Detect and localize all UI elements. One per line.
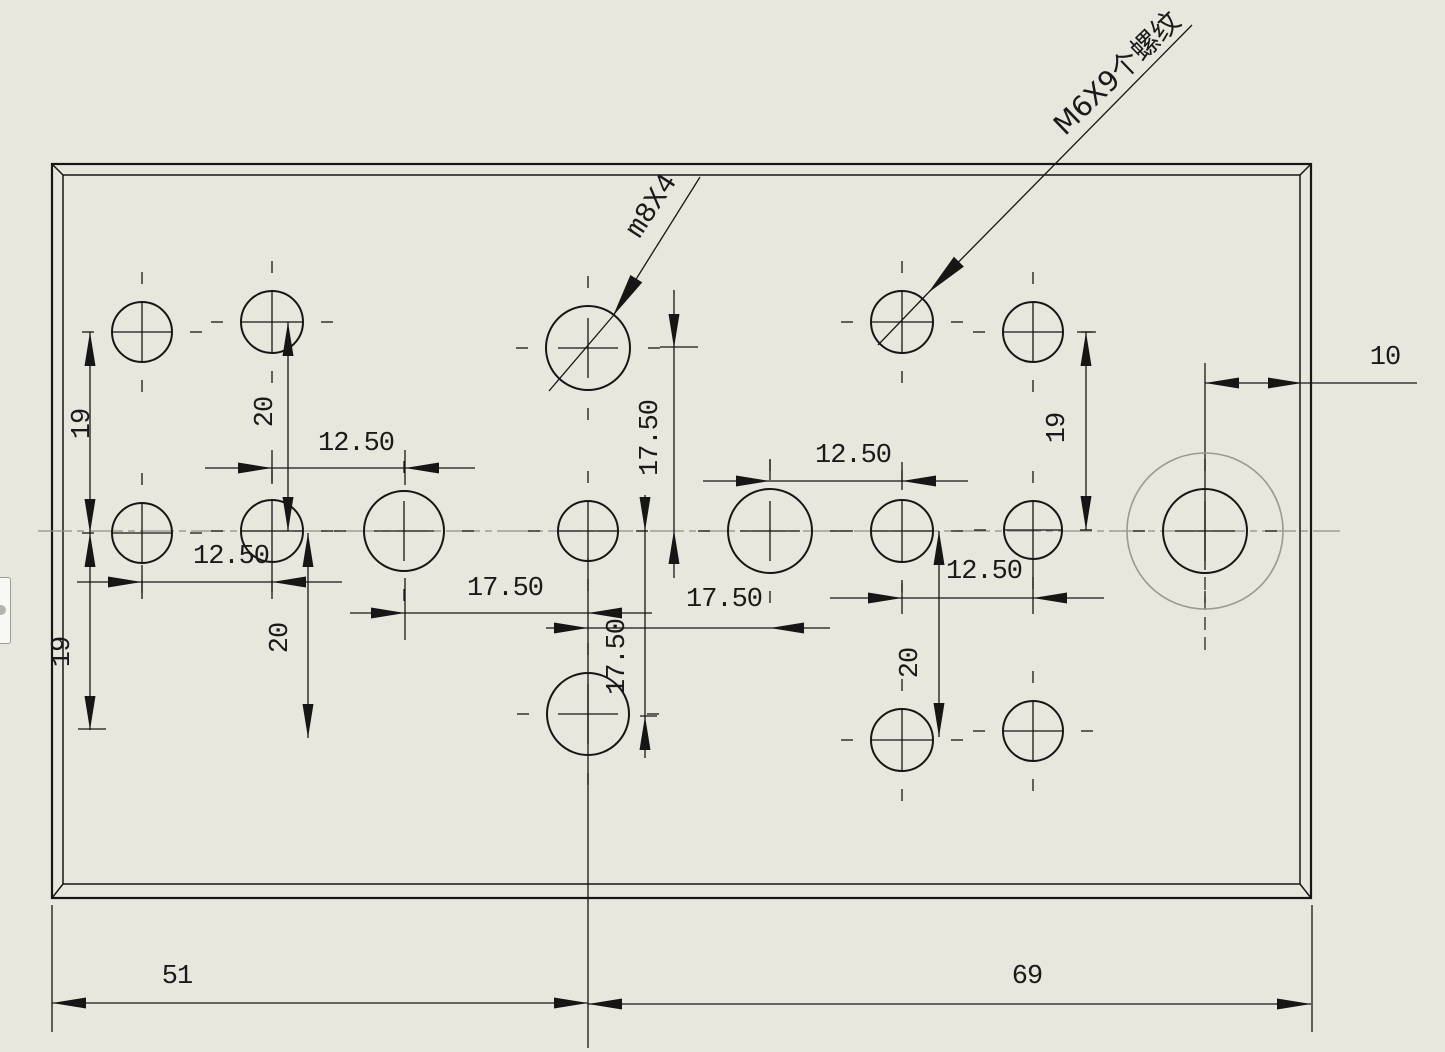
dimension-12.50: 12.50 [703, 441, 968, 487]
dimension-label[interactable]: 12.50 [815, 441, 891, 471]
dimension-12.50: 12.50 [830, 557, 1104, 604]
dimension-arrowhead-icon [303, 704, 314, 738]
dimension-arrowhead-icon [934, 703, 945, 737]
dimension-label[interactable]: 17.50 [603, 619, 633, 695]
dimension-arrowhead-icon [640, 497, 651, 531]
dimension-arrowhead-icon [283, 497, 294, 531]
dimension-arrowhead-icon [902, 476, 936, 487]
hole [973, 671, 1093, 791]
dimension-label[interactable]: 17.50 [636, 400, 666, 476]
plate-corner-bevel [52, 164, 63, 175]
dimension-arrowhead-icon [640, 716, 651, 750]
dimension-label[interactable]: 51 [162, 962, 192, 992]
dimension-17.50: 17.50 [636, 290, 680, 578]
dimension-arrowhead-icon [85, 696, 96, 730]
leader-tail-line [878, 293, 928, 345]
drawing-viewport: 192012.5012.50192017.5017.5017.5017.5012… [0, 0, 1445, 1052]
side-panel-tab-grip-icon [0, 605, 6, 615]
dimension-arrowhead-icon [85, 332, 96, 366]
dimension-arrowhead-icon [1277, 999, 1311, 1010]
hole [973, 272, 1093, 392]
plate-corner-bevel [1300, 164, 1311, 175]
leader-label[interactable]: M6X9个螺纹 [1047, 5, 1187, 142]
dimension-17.50: 17.50 [603, 495, 651, 758]
dimension-label[interactable]: 10 [1370, 343, 1400, 373]
dimension-label[interactable]: 12.50 [318, 429, 394, 459]
dimension-17.50: 17.50 [350, 574, 652, 619]
dimension-arrowhead-icon [1033, 593, 1067, 604]
extension-lines [52, 332, 1312, 1048]
dimension-arrowhead-icon [405, 463, 439, 474]
plate-corner-bevel [52, 884, 63, 898]
leader-annotation: m8X4 [549, 168, 700, 391]
side-panel-collapse-tab[interactable] [0, 577, 11, 644]
dimension-label[interactable]: 12.50 [193, 542, 269, 572]
dimension-51: 51 [52, 962, 588, 1009]
dimension-label[interactable]: 20 [266, 623, 296, 653]
dimension-arrowhead-icon [371, 608, 405, 619]
dimension-label[interactable]: 20 [251, 397, 281, 427]
leader-tail-line [549, 316, 613, 391]
dimension-label[interactable]: 69 [1012, 962, 1042, 992]
dimension-arrowhead-icon [554, 623, 588, 634]
dimension-19: 19 [1043, 332, 1092, 530]
plate-corner-bevel [1300, 884, 1311, 898]
dimension-label[interactable]: 19 [68, 409, 98, 439]
dimension-arrowhead-icon [934, 531, 945, 565]
dimension-arrowhead-icon [1205, 378, 1239, 389]
dimension-arrowhead-icon [868, 593, 902, 604]
plate-inner-edge[interactable] [63, 175, 1300, 884]
dimension-arrowhead-icon [283, 322, 294, 356]
dimension-19: 19 [48, 533, 96, 730]
cad-drawing: 192012.5012.50192017.5017.5017.5017.5012… [0, 0, 1445, 1052]
dimension-arrowhead-icon [669, 314, 680, 348]
dimension-arrowhead-icon [770, 623, 804, 634]
dimension-20: 20 [266, 533, 314, 738]
dimension-label[interactable]: 20 [896, 648, 926, 678]
dimension-arrowhead-icon [669, 530, 680, 564]
dimension-arrowhead-icon [52, 998, 86, 1009]
dimension-69: 69 [588, 962, 1311, 1010]
dimension-label[interactable]: 17.50 [467, 574, 543, 604]
dimension-label[interactable]: 19 [1043, 413, 1073, 443]
leader-line [928, 25, 1192, 293]
dimension-label[interactable]: 19 [48, 637, 78, 667]
dimension-arrowhead-icon [238, 463, 272, 474]
dimension-19: 19 [68, 332, 98, 533]
dimension-arrowhead-icon [1268, 378, 1302, 389]
dimension-arrowhead-icon [1081, 496, 1092, 530]
dimension-label[interactable]: 12.50 [946, 557, 1022, 587]
dimension-label[interactable]: 17.50 [686, 585, 762, 615]
dimension-arrowhead-icon [108, 577, 142, 588]
dimension-arrowhead-icon [85, 533, 96, 567]
dimension-12.50: 12.50 [205, 429, 475, 474]
dimension-arrowhead-icon [923, 257, 964, 298]
leader-label[interactable]: m8X4 [619, 168, 685, 244]
dimension-arrowhead-icon [272, 577, 306, 588]
dimension-arrowhead-icon [554, 998, 588, 1009]
dimension-arrowhead-icon [588, 608, 622, 619]
hole [211, 261, 333, 383]
dimension-arrowhead-icon [588, 999, 622, 1010]
dimension-arrowhead-icon [85, 499, 96, 533]
dimension-arrowhead-icon [1081, 332, 1092, 366]
hole [82, 272, 202, 392]
dimension-arrowhead-icon [303, 533, 314, 567]
hole [841, 679, 963, 801]
dimension-arrowhead-icon [736, 476, 770, 487]
hole [516, 276, 660, 420]
